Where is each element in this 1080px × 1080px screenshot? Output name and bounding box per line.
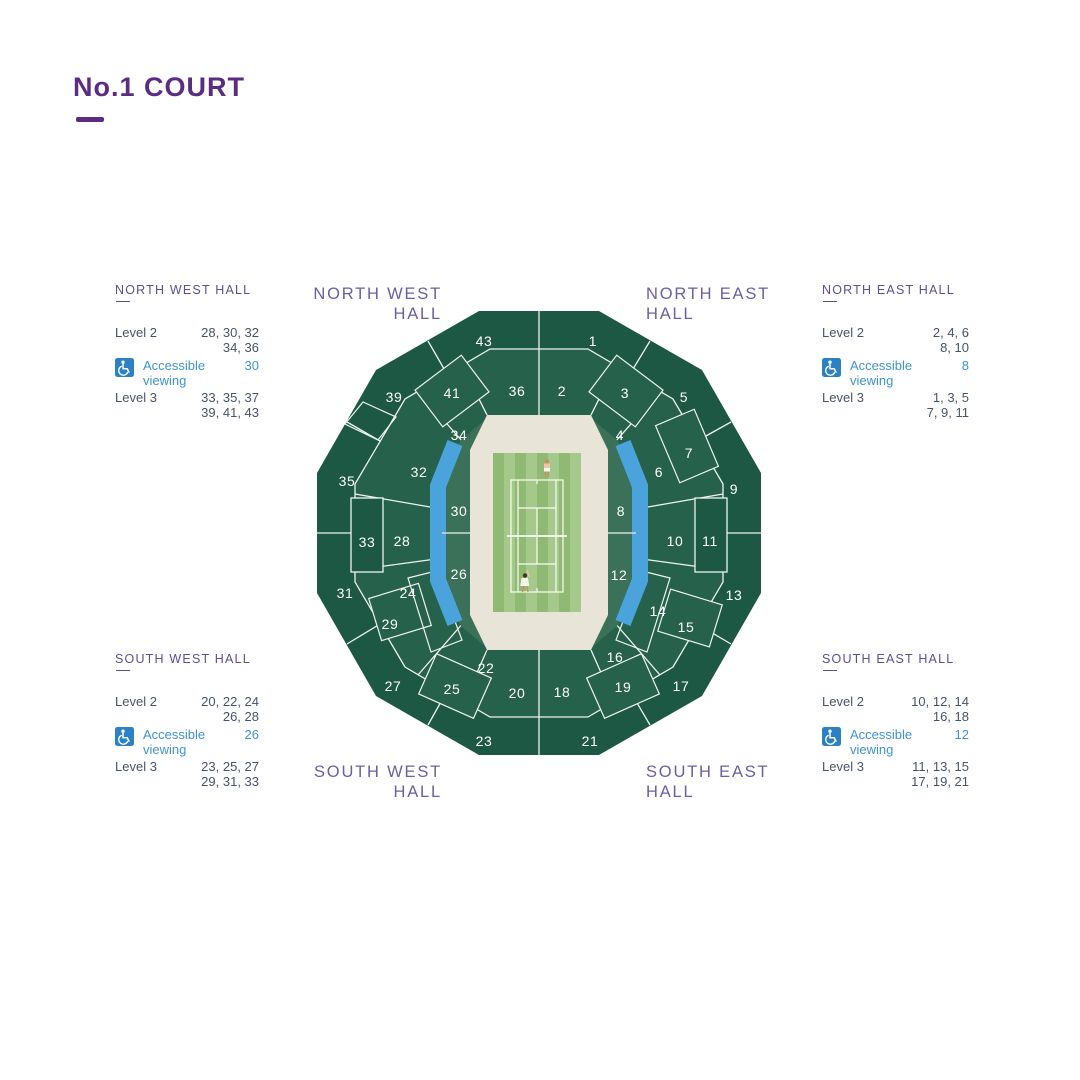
level2-sections: 2, 4, 6 8, 10 [864,326,969,355]
level2-row: Level 2 10, 12, 14 16, 18 [822,695,969,724]
section-28[interactable]: 28 [394,533,411,549]
hall-label-north-east: NORTH EASTHALL [646,285,846,324]
section-7[interactable]: 7 [685,445,693,461]
section-15[interactable]: 15 [678,619,695,635]
accessible-section: 30 [205,359,259,374]
section-22[interactable]: 22 [478,660,495,676]
section-13[interactable]: 13 [726,587,743,603]
accessible-row: Accessible viewing 26 [115,728,259,757]
section-41[interactable]: 41 [444,385,461,401]
level2-sections: 20, 22, 24 26, 28 [157,695,259,724]
section-1[interactable]: 1 [589,333,597,349]
section-27[interactable]: 27 [385,678,402,694]
level3-row: Level 3 11, 13, 15 17, 19, 21 [822,760,969,789]
section-10[interactable]: 10 [667,533,684,549]
hall-label-south-west: SOUTH WESTHALL [280,763,442,802]
section-19[interactable]: 19 [615,679,632,695]
accessible-section: 26 [205,728,259,743]
level3-row: Level 3 1, 3, 5 7, 9, 11 [822,391,969,420]
section-29[interactable]: 29 [382,616,399,632]
accessible-section: 8 [912,359,969,374]
panel-header: SOUTH WEST HALL [115,652,259,671]
section-36[interactable]: 36 [509,383,526,399]
panel-header: SOUTH EAST HALL [822,652,969,671]
level3-sections: 11, 13, 15 17, 19, 21 [864,760,969,789]
stadium-map: 4313941362353534479323086332810113126121… [0,0,1080,1080]
section-18[interactable]: 18 [554,684,571,700]
level3-sections: 1, 3, 5 7, 9, 11 [864,391,969,420]
wheelchair-icon [822,727,841,746]
section-24[interactable]: 24 [400,585,417,601]
hall-label-north-west: NORTH WESTHALL [280,285,442,324]
section-34[interactable]: 34 [451,427,468,443]
level2-row: Level 2 2, 4, 6 8, 10 [822,326,969,355]
accessible-section: 12 [912,728,969,743]
section-5[interactable]: 5 [680,389,688,405]
section-14[interactable]: 14 [650,603,667,619]
level2-row: Level 2 28, 30, 32 34, 36 [115,326,259,355]
section-21[interactable]: 21 [582,733,599,749]
section-33[interactable]: 33 [359,534,376,550]
level2-sections: 10, 12, 14 16, 18 [864,695,969,724]
section-6[interactable]: 6 [655,464,663,480]
accessible-row: Accessible viewing 12 [822,728,969,757]
section-12[interactable]: 12 [611,567,628,583]
level3-sections: 23, 25, 27 29, 31, 33 [157,760,259,789]
accessible-row: Accessible viewing 30 [115,359,259,388]
section-17[interactable]: 17 [673,678,690,694]
section-2[interactable]: 2 [558,383,566,399]
panel-north-west: NORTH WEST HALL Level 2 28, 30, 32 34, 3… [115,283,259,424]
panel-north-east: NORTH EAST HALL Level 2 2, 4, 6 8, 10 Ac… [822,283,969,424]
level2-row: Level 2 20, 22, 24 26, 28 [115,695,259,724]
section-9[interactable]: 9 [730,481,738,497]
wheelchair-icon [115,727,134,746]
level3-sections: 33, 35, 37 39, 41, 43 [157,391,259,420]
section-20[interactable]: 20 [509,685,526,701]
section-32[interactable]: 32 [411,464,428,480]
wheelchair-icon [115,358,134,377]
hall-label-south-east: SOUTH EASTHALL [646,763,846,802]
section-39[interactable]: 39 [386,389,403,405]
section-31[interactable]: 31 [337,585,354,601]
wheelchair-icon [822,358,841,377]
section-16[interactable]: 16 [607,649,624,665]
panel-south-east: SOUTH EAST HALL Level 2 10, 12, 14 16, 1… [822,652,969,793]
seating-map-page: No.1 COURT [0,0,1080,1080]
section-25[interactable]: 25 [444,681,461,697]
section-23[interactable]: 23 [476,733,493,749]
section-43[interactable]: 43 [476,333,493,349]
section-11[interactable]: 11 [702,533,718,549]
panel-header: NORTH EAST HALL [822,283,969,302]
section-4[interactable]: 4 [616,427,624,443]
panel-header: NORTH WEST HALL [115,283,259,302]
section-35[interactable]: 35 [339,473,356,489]
accessible-row: Accessible viewing 8 [822,359,969,388]
level2-sections: 28, 30, 32 34, 36 [157,326,259,355]
section-8[interactable]: 8 [617,503,625,519]
section-26[interactable]: 26 [451,566,468,582]
section-30[interactable]: 30 [451,503,468,519]
panel-south-west: SOUTH WEST HALL Level 2 20, 22, 24 26, 2… [115,652,259,793]
section-3[interactable]: 3 [621,385,629,401]
level3-row: Level 3 23, 25, 27 29, 31, 33 [115,760,259,789]
tennis-court [493,453,581,612]
level3-row: Level 3 33, 35, 37 39, 41, 43 [115,391,259,420]
